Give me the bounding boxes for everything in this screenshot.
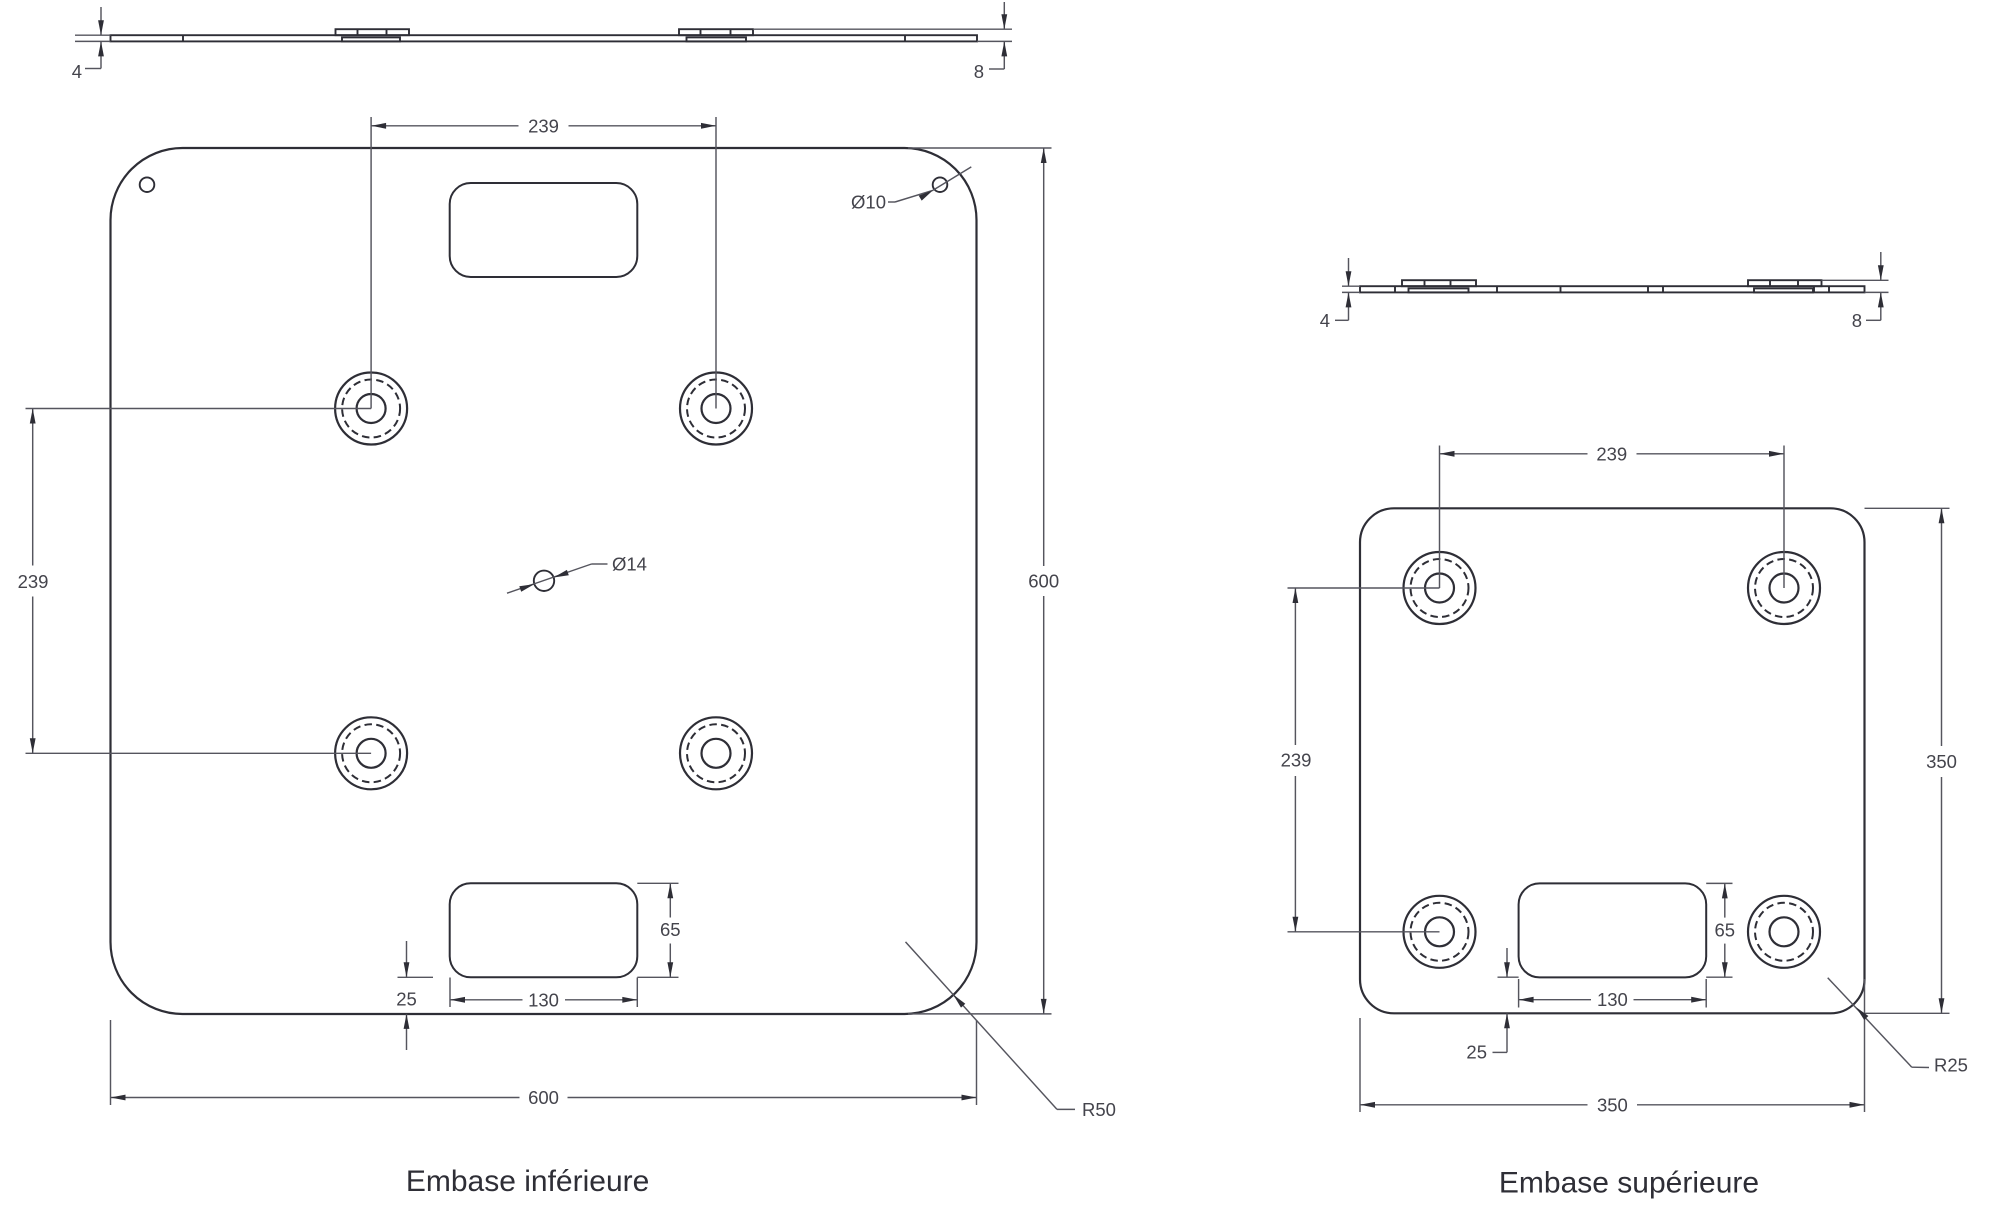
svg-text:4: 4 [72,61,82,82]
svg-text:65: 65 [1715,919,1736,940]
svg-text:239: 239 [1281,750,1312,771]
svg-text:350: 350 [1597,1094,1628,1115]
svg-text:25: 25 [1466,1042,1487,1063]
svg-text:239: 239 [528,115,559,136]
svg-text:239: 239 [1596,443,1627,464]
svg-text:65: 65 [660,919,681,940]
svg-text:R50: R50 [1082,1099,1116,1120]
svg-text:600: 600 [528,1087,559,1108]
svg-text:8: 8 [1852,310,1862,331]
svg-text:Ø10: Ø10 [851,192,886,213]
svg-text:8: 8 [974,61,984,82]
svg-text:Embase supérieure: Embase supérieure [1499,1167,1759,1200]
svg-text:600: 600 [1028,571,1059,592]
svg-text:130: 130 [528,989,559,1010]
svg-text:Embase inférieure: Embase inférieure [406,1165,649,1198]
svg-text:239: 239 [18,571,49,592]
svg-text:350: 350 [1926,751,1957,772]
svg-text:130: 130 [1597,989,1628,1010]
svg-text:4: 4 [1320,310,1330,331]
svg-text:Ø14: Ø14 [612,554,647,575]
svg-text:R25: R25 [1934,1055,1968,1076]
svg-text:25: 25 [396,989,417,1010]
